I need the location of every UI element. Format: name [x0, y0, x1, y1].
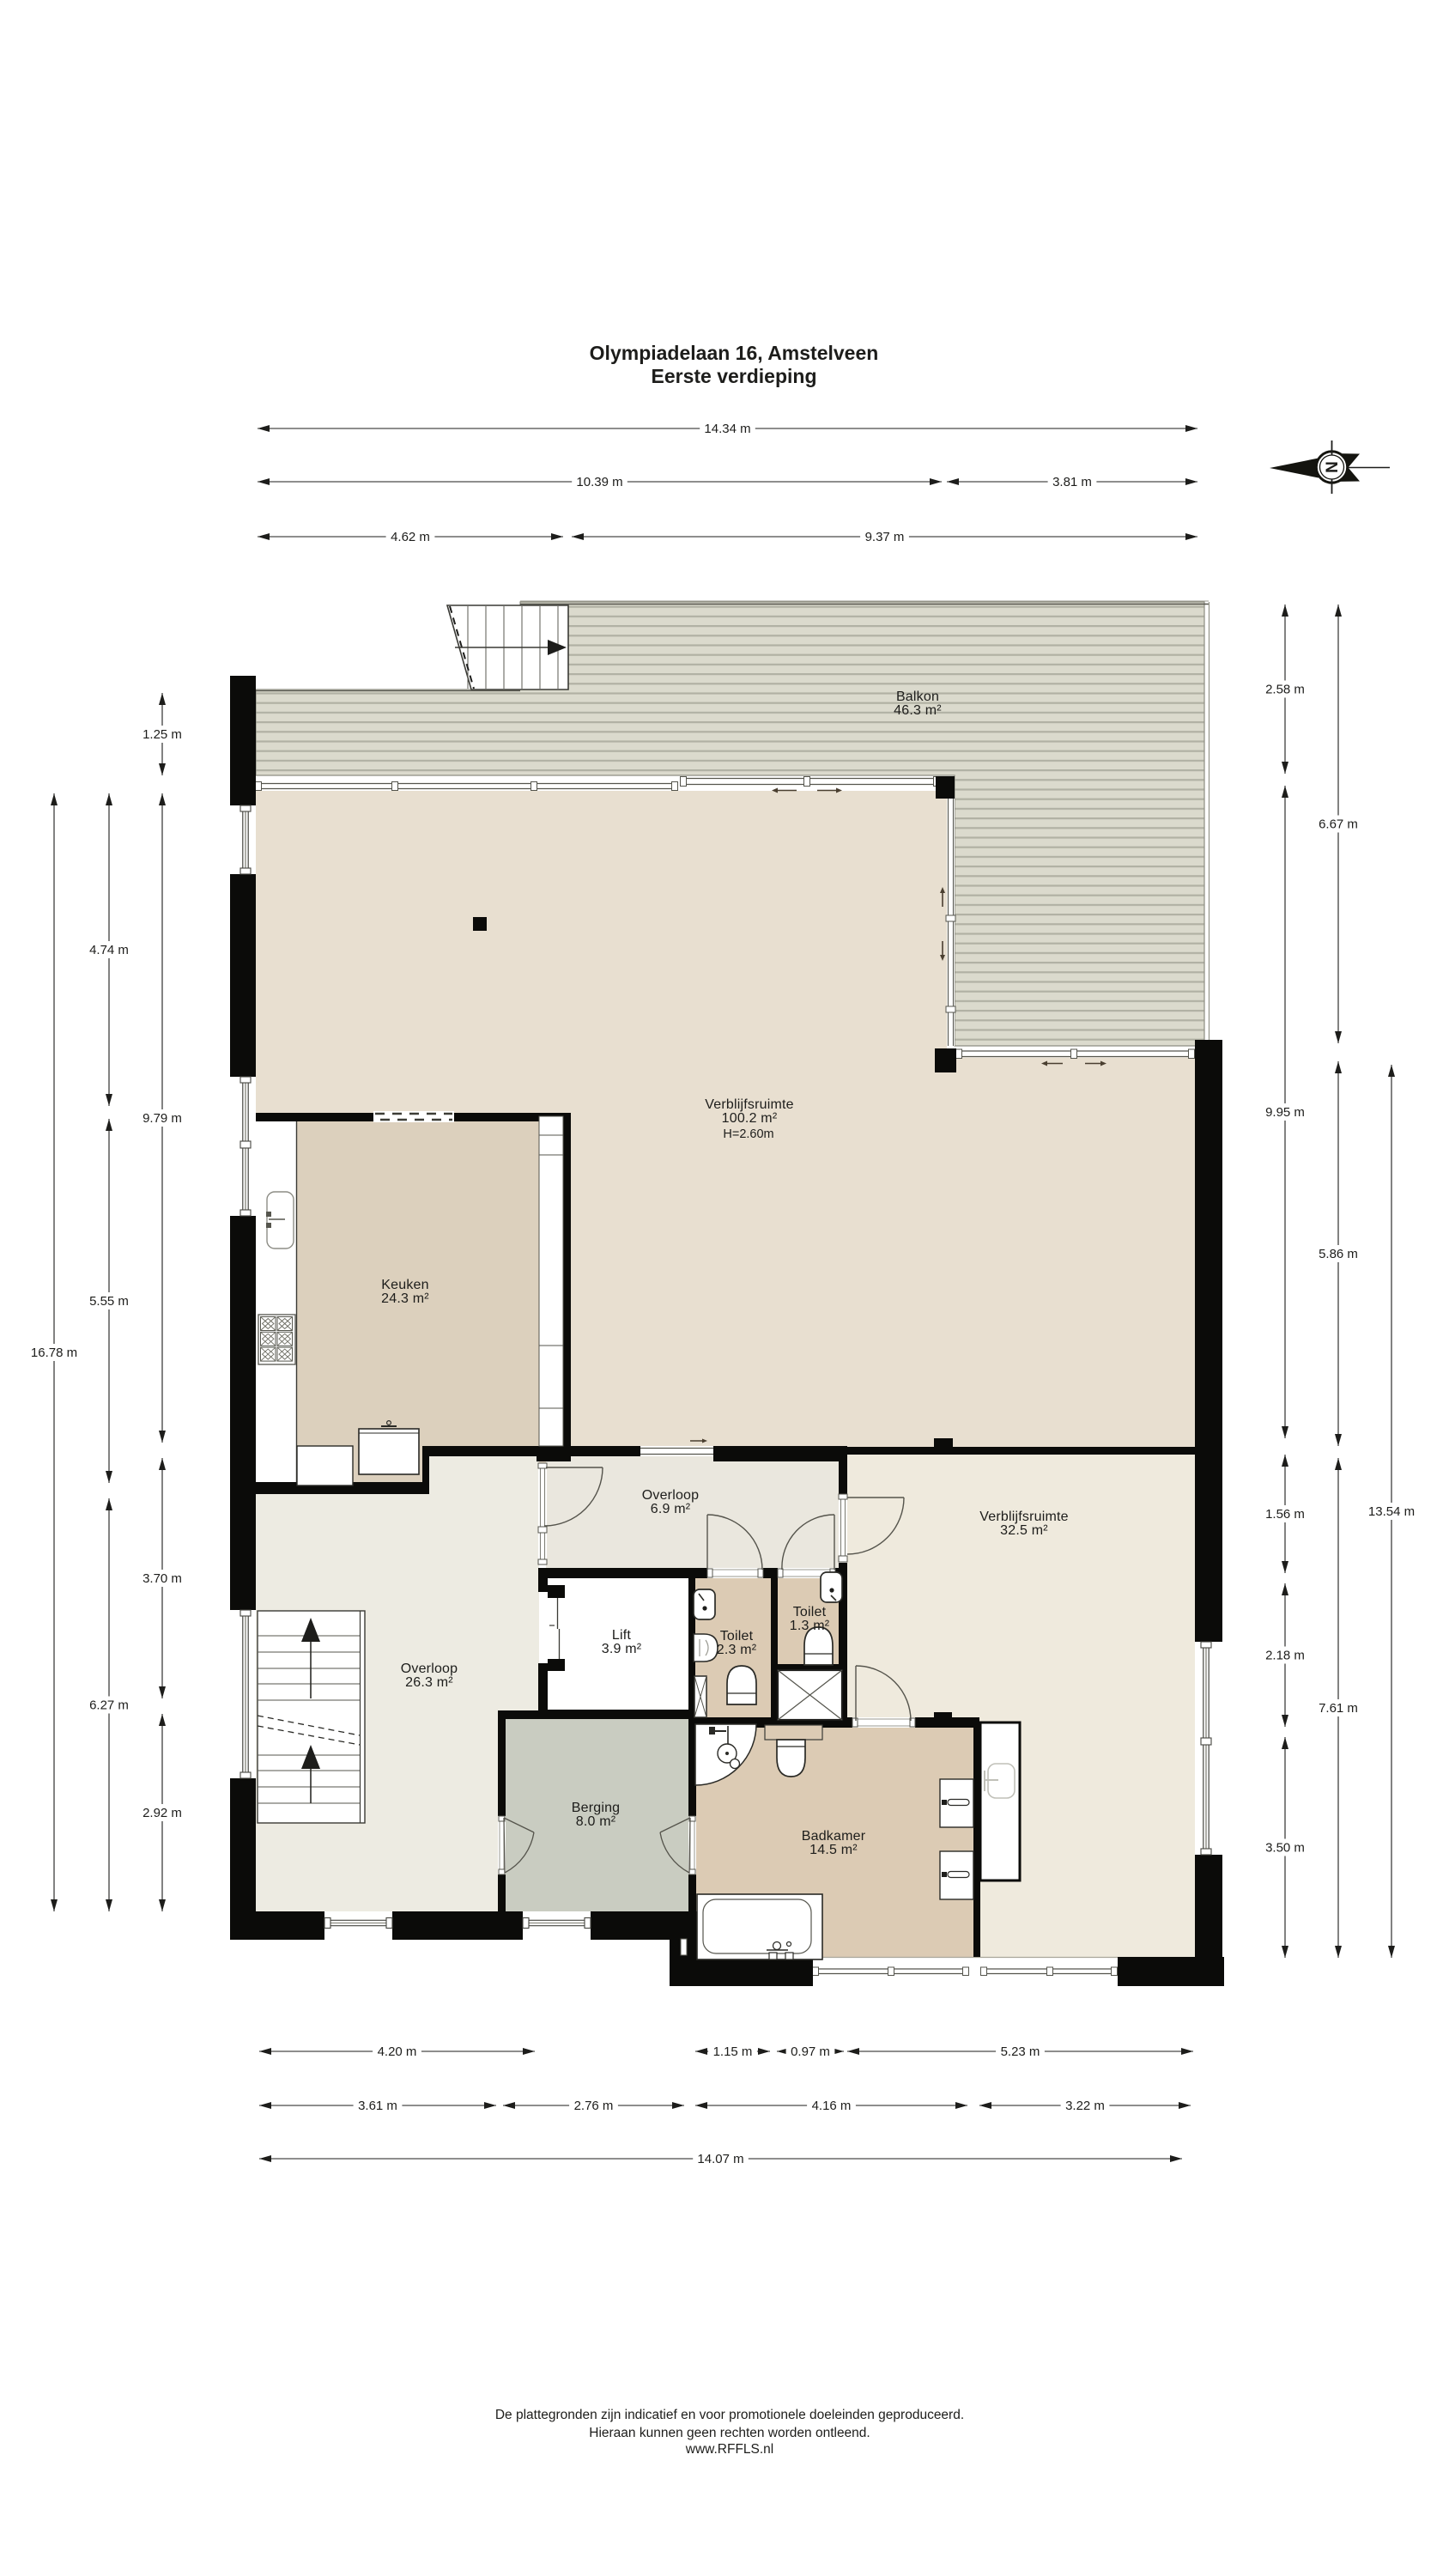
- svg-text:7.61 m: 7.61 m: [1319, 1701, 1358, 1716]
- svg-text:Lift: Lift: [612, 1628, 631, 1643]
- svg-text:3.50 m: 3.50 m: [1265, 1841, 1305, 1856]
- svg-text:Overloop: Overloop: [642, 1488, 700, 1503]
- svg-text:www.RFFLS.nl: www.RFFLS.nl: [685, 2442, 774, 2457]
- svg-text:6.67 m: 6.67 m: [1319, 817, 1358, 832]
- svg-text:3.9 m²: 3.9 m²: [602, 1642, 642, 1656]
- svg-text:8.0 m²: 8.0 m²: [576, 1814, 616, 1829]
- svg-text:Toilet: Toilet: [793, 1605, 827, 1619]
- svg-text:2.3 m²: 2.3 m²: [717, 1643, 757, 1657]
- svg-text:4.16 m: 4.16 m: [812, 2099, 852, 2113]
- svg-text:16.78 m: 16.78 m: [31, 1346, 77, 1360]
- svg-text:1.56 m: 1.56 m: [1265, 1507, 1305, 1522]
- svg-text:32.5 m²: 32.5 m²: [1000, 1523, 1048, 1538]
- svg-text:14.5 m²: 14.5 m²: [809, 1843, 858, 1857]
- svg-text:De plattegronden zijn indicati: De plattegronden zijn indicatief en voor…: [495, 2408, 964, 2422]
- svg-text:Keuken: Keuken: [381, 1278, 428, 1292]
- svg-text:Verblijfsruimte: Verblijfsruimte: [979, 1510, 1068, 1524]
- svg-text:6.9 m²: 6.9 m²: [651, 1502, 691, 1516]
- svg-text:4.62 m: 4.62 m: [391, 530, 430, 544]
- svg-text:13.54 m: 13.54 m: [1368, 1504, 1415, 1519]
- svg-text:9.95 m: 9.95 m: [1265, 1105, 1305, 1120]
- svg-text:46.3 m²: 46.3 m²: [894, 703, 942, 718]
- svg-text:6.27 m: 6.27 m: [89, 1698, 129, 1713]
- svg-text:0.97 m: 0.97 m: [791, 2044, 830, 2059]
- svg-text:5.23 m: 5.23 m: [1001, 2044, 1040, 2059]
- svg-text:2.18 m: 2.18 m: [1265, 1649, 1305, 1663]
- svg-text:N: N: [1324, 461, 1342, 473]
- svg-text:H=2.60m: H=2.60m: [723, 1127, 773, 1141]
- svg-text:1.3 m²: 1.3 m²: [790, 1619, 830, 1633]
- svg-text:Verblijfsruimte: Verblijfsruimte: [705, 1097, 793, 1112]
- svg-text:Badkamer: Badkamer: [802, 1829, 866, 1844]
- svg-text:3.61 m: 3.61 m: [358, 2099, 397, 2113]
- svg-text:3.22 m: 3.22 m: [1065, 2099, 1105, 2113]
- svg-text:2.76 m: 2.76 m: [574, 2099, 614, 2113]
- svg-text:Toilet: Toilet: [720, 1629, 754, 1643]
- svg-text:9.79 m: 9.79 m: [142, 1111, 182, 1126]
- svg-text:Balkon: Balkon: [896, 690, 939, 704]
- svg-text:Hieraan kunnen geen rechten wo: Hieraan kunnen geen rechten worden ontle…: [589, 2426, 870, 2440]
- svg-text:10.39 m: 10.39 m: [576, 475, 622, 489]
- svg-text:3.81 m: 3.81 m: [1052, 475, 1092, 489]
- svg-text:1.15 m: 1.15 m: [713, 2044, 753, 2059]
- svg-text:Eerste verdieping: Eerste verdieping: [651, 365, 816, 387]
- svg-text:9.37 m: 9.37 m: [865, 530, 905, 544]
- svg-text:Olympiadelaan 16, Amstelveen: Olympiadelaan 16, Amstelveen: [590, 342, 879, 364]
- svg-text:5.55 m: 5.55 m: [89, 1294, 129, 1309]
- svg-text:24.3 m²: 24.3 m²: [381, 1291, 429, 1306]
- svg-text:5.86 m: 5.86 m: [1319, 1247, 1358, 1261]
- svg-text:2.92 m: 2.92 m: [142, 1806, 182, 1820]
- svg-text:2.58 m: 2.58 m: [1265, 683, 1305, 697]
- svg-text:4.74 m: 4.74 m: [89, 943, 129, 957]
- svg-text:14.07 m: 14.07 m: [697, 2152, 743, 2166]
- svg-text:1.25 m: 1.25 m: [142, 727, 182, 742]
- svg-text:4.20 m: 4.20 m: [378, 2044, 417, 2059]
- svg-text:Overloop: Overloop: [401, 1662, 458, 1676]
- svg-text:100.2 m²: 100.2 m²: [722, 1111, 778, 1126]
- svg-text:14.34 m: 14.34 m: [704, 422, 750, 436]
- svg-text:26.3 m²: 26.3 m²: [405, 1675, 453, 1690]
- svg-text:3.70 m: 3.70 m: [142, 1571, 182, 1586]
- svg-text:Berging: Berging: [572, 1801, 621, 1815]
